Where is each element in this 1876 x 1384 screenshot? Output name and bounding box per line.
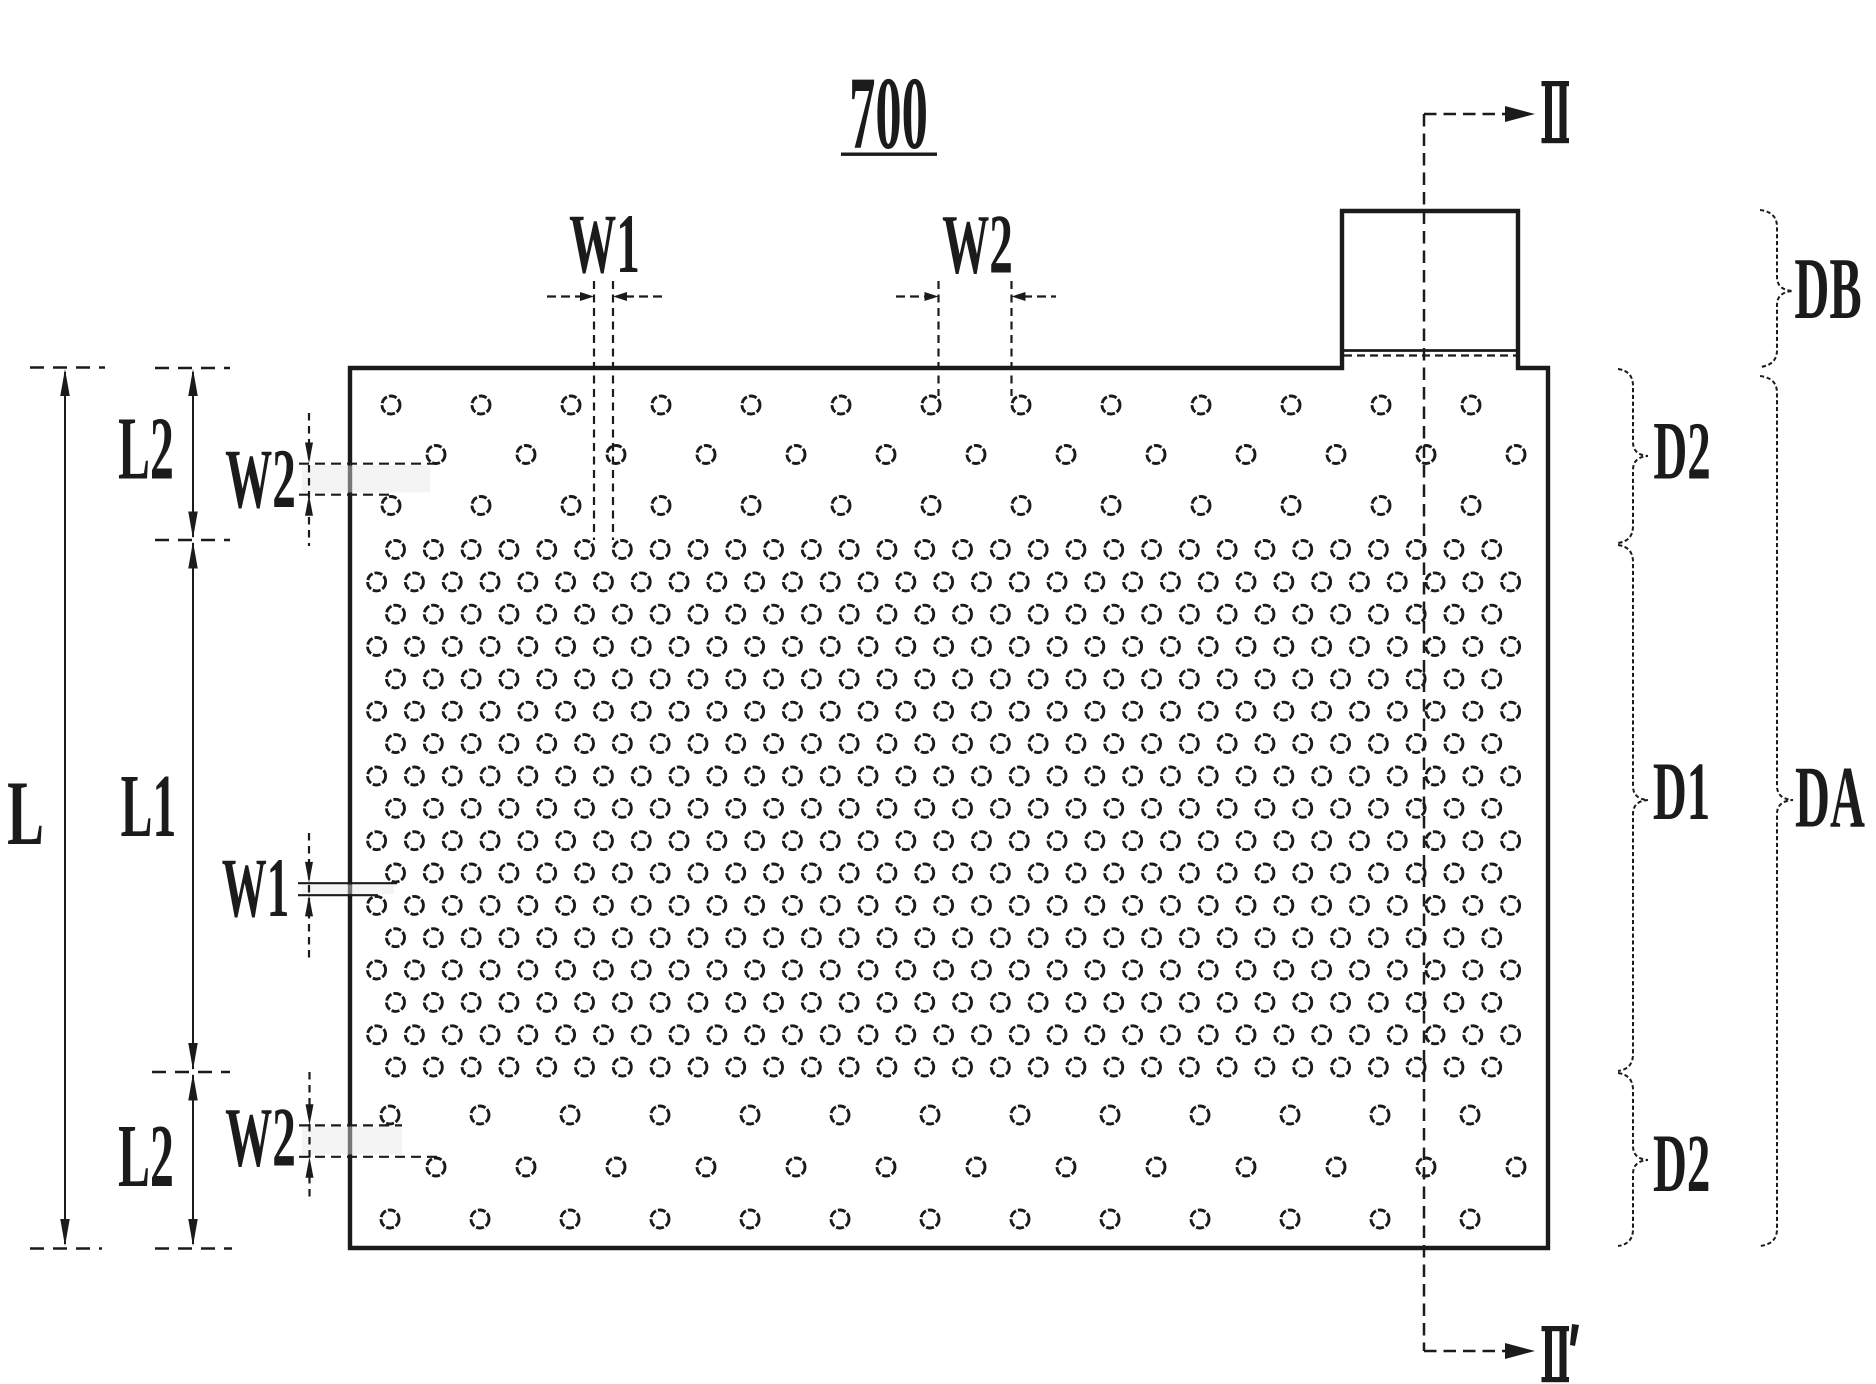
svg-text:DB: DB <box>1794 241 1861 338</box>
svg-text:W2: W2 <box>225 432 296 526</box>
svg-text:DA: DA <box>1795 750 1865 847</box>
svg-text:D2: D2 <box>1653 405 1710 497</box>
svg-text:L: L <box>7 763 44 865</box>
svg-text:W2: W2 <box>225 1090 296 1184</box>
svg-text:D1: D1 <box>1653 745 1710 837</box>
svg-text:W1: W1 <box>222 840 290 935</box>
svg-text:L2: L2 <box>118 398 174 498</box>
svg-text:D2: D2 <box>1653 1117 1710 1209</box>
svg-text:L2: L2 <box>118 1106 174 1206</box>
svg-text:W2: W2 <box>942 197 1013 291</box>
svg-text:L1: L1 <box>121 756 177 856</box>
svg-text:W1: W1 <box>569 197 640 291</box>
